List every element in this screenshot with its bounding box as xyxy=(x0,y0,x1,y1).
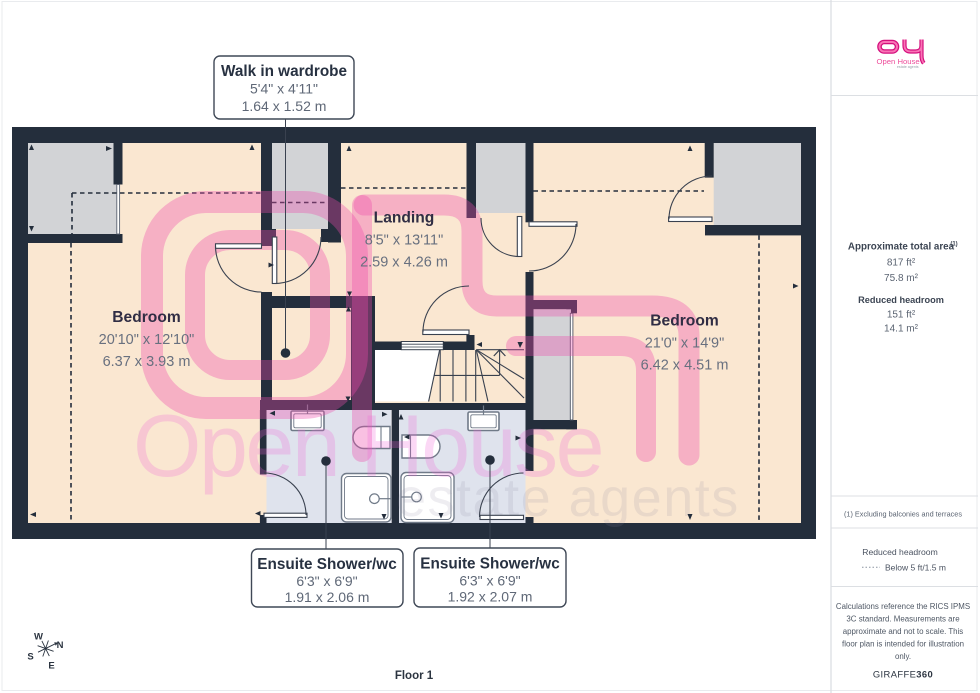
svg-text:14.1 m²: 14.1 m² xyxy=(884,324,919,335)
svg-text:817 ft²: 817 ft² xyxy=(887,258,916,269)
svg-text:Below 5 ft/1.5 m: Below 5 ft/1.5 m xyxy=(885,562,946,572)
svg-text:(1): (1) xyxy=(950,242,957,248)
svg-text:3C standard. Measurements are: 3C standard. Measurements are xyxy=(846,615,960,624)
svg-text:floor plan is intended for ill: floor plan is intended for illustration xyxy=(842,640,964,649)
svg-text:Ensuite Shower/wc: Ensuite Shower/wc xyxy=(420,556,560,573)
svg-text:20'10" x 12'10": 20'10" x 12'10" xyxy=(99,332,195,348)
svg-text:estate agents: estate agents xyxy=(396,468,740,528)
svg-text:75.8 m²: 75.8 m² xyxy=(884,273,919,284)
svg-text:Ensuite Shower/wc: Ensuite Shower/wc xyxy=(257,556,397,573)
svg-text:GIRAFFE360: GIRAFFE360 xyxy=(873,669,933,680)
svg-text:Approximate total area: Approximate total area xyxy=(848,242,955,253)
svg-text:5'4" x 4'11": 5'4" x 4'11" xyxy=(250,81,318,97)
svg-text:6.42 x 4.51 m: 6.42 x 4.51 m xyxy=(641,358,729,374)
svg-text:Floor 1: Floor 1 xyxy=(395,670,434,682)
svg-text:6'3" x 6'9": 6'3" x 6'9" xyxy=(296,573,357,589)
svg-text:6.37 x 3.93 m: 6.37 x 3.93 m xyxy=(103,354,191,370)
svg-text:estate agents: estate agents xyxy=(897,65,919,69)
svg-text:1.64 x 1.52 m: 1.64 x 1.52 m xyxy=(242,98,327,114)
svg-text:S: S xyxy=(27,652,33,663)
svg-text:Bedroom: Bedroom xyxy=(650,313,718,330)
svg-text:1.91 x 2.06 m: 1.91 x 2.06 m xyxy=(285,589,370,605)
svg-text:Reduced headroom: Reduced headroom xyxy=(862,547,938,557)
svg-text:Landing: Landing xyxy=(374,210,435,227)
svg-text:151 ft²: 151 ft² xyxy=(887,310,916,321)
svg-text:(1) Excluding balconies and te: (1) Excluding balconies and terraces xyxy=(844,510,962,519)
svg-text:Calculations reference the RIC: Calculations reference the RICS IPMS xyxy=(836,602,970,611)
svg-text:W: W xyxy=(34,632,43,643)
svg-text:6'3" x 6'9": 6'3" x 6'9" xyxy=(459,572,520,588)
svg-text:1.92 x 2.07 m: 1.92 x 2.07 m xyxy=(448,589,533,605)
svg-text:approximate and not to scale.: approximate and not to scale. This xyxy=(843,627,964,636)
svg-text:Reduced headroom: Reduced headroom xyxy=(858,295,944,305)
svg-text:N: N xyxy=(57,640,64,651)
svg-text:2.59 x 4.26 m: 2.59 x 4.26 m xyxy=(360,255,448,271)
svg-text:only.: only. xyxy=(895,652,911,661)
svg-text:21'0" x 14'9": 21'0" x 14'9" xyxy=(645,336,725,352)
svg-text:Walk in wardrobe: Walk in wardrobe xyxy=(221,63,347,80)
svg-text:8'5" x 13'11": 8'5" x 13'11" xyxy=(365,233,443,249)
svg-text:Bedroom: Bedroom xyxy=(112,309,180,326)
svg-text:E: E xyxy=(48,661,54,672)
